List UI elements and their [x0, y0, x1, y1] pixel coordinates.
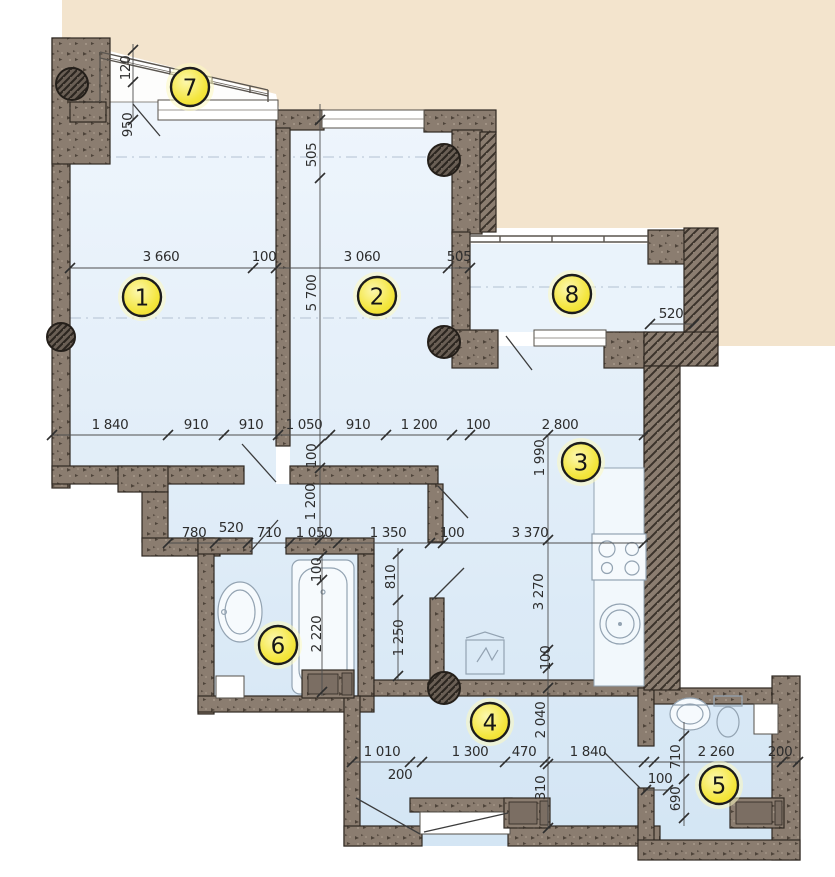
dimension-label: 200 [388, 767, 413, 783]
dimension-label: 3 660 [143, 249, 180, 265]
column-icon [47, 323, 75, 351]
dimension-label: 710 [257, 525, 282, 541]
dimension-label: 910 [346, 417, 371, 433]
dimension-label: 1 200 [303, 484, 319, 521]
dimension-label: 100 [309, 558, 325, 583]
dimension-label: 2 220 [309, 616, 325, 653]
column-icon [428, 672, 460, 704]
room-badge-5: 5 [695, 761, 743, 809]
dimension-label: 710 [668, 745, 684, 770]
bathroom-cabinet-side [342, 673, 352, 695]
column-icon [428, 144, 460, 176]
dimension-label: 470 [512, 744, 537, 760]
dimension-label: 950 [120, 113, 136, 138]
room-number-8: 8 [565, 282, 580, 308]
door-gap-floor [438, 466, 468, 484]
column-icon [56, 68, 88, 100]
dimension-label: 3 370 [512, 525, 549, 541]
room-1-floor [70, 120, 276, 466]
room-badge-1: 1 [118, 273, 166, 321]
room-number-1: 1 [135, 285, 150, 311]
dimension-label: 100 [440, 525, 465, 541]
floor-plan-canvas: 3 6601003 0605055201 8409109101 0509101 … [0, 0, 835, 877]
room-badge-6: 6 [254, 621, 302, 669]
kitchen-sink-icon [600, 604, 640, 644]
bathroom-sink-icon [218, 582, 262, 642]
room-number-6: 6 [271, 633, 286, 659]
room-badge-7: 7 [166, 63, 214, 111]
dimension-label: 1 200 [401, 417, 438, 433]
dimension-label: 3 270 [531, 574, 547, 611]
room-number-7: 7 [183, 75, 198, 101]
room-badge-8: 8 [548, 270, 596, 318]
dimension-label: 2 260 [698, 744, 735, 760]
dimension-label: 3 060 [344, 249, 381, 265]
wc-sink-icon [670, 698, 710, 730]
dimension-label: 520 [659, 306, 684, 322]
dimension-label: 690 [668, 787, 684, 812]
bathroom-step [216, 676, 244, 698]
room-number-3: 3 [574, 450, 589, 476]
room-badge-4: 4 [466, 698, 514, 746]
dimension-label: 1 050 [296, 525, 333, 541]
washer-icon [730, 798, 784, 828]
dimension-label: 505 [447, 249, 472, 265]
dimension-label: 1 300 [452, 744, 489, 760]
shaft-room5 [754, 704, 778, 734]
room-badge-3: 3 [557, 438, 605, 486]
dimension-label: 1 010 [364, 744, 401, 760]
dimension-label: 2 800 [542, 417, 579, 433]
dimension-label: 520 [219, 520, 244, 536]
dimension-label: 1 250 [391, 620, 407, 657]
dimension-label: 1 840 [92, 417, 129, 433]
dimension-label: 100 [466, 417, 491, 433]
room-number-2: 2 [370, 284, 385, 310]
dimension-label: 100 [252, 249, 277, 265]
column-icon [428, 326, 460, 358]
dimension-label: 1 050 [286, 417, 323, 433]
room-number-4: 4 [483, 710, 498, 736]
room-badge-2: 2 [353, 272, 401, 320]
dimension-label: 910 [239, 417, 264, 433]
room-number-5: 5 [712, 773, 727, 799]
dimension-label: 780 [182, 525, 207, 541]
dimension-label: 200 [768, 744, 793, 760]
dimension-label: 2 040 [533, 702, 549, 739]
dimension-label: 100 [304, 444, 320, 469]
dimension-label: 1 990 [532, 440, 548, 477]
dimension-label: 100 [538, 646, 554, 671]
dimension-label: 910 [184, 417, 209, 433]
dimension-label: 810 [383, 565, 399, 590]
floor-plan: 3 6601003 0605055201 8409109101 0509101 … [0, 0, 835, 877]
door-gap-floor [244, 466, 276, 484]
dimension-label: 310 [533, 776, 549, 801]
kitchen-stove-icon [592, 534, 646, 580]
dimension-label: 505 [304, 143, 320, 168]
dimension-label: 5 700 [304, 275, 320, 312]
dimension-label: 1 350 [370, 525, 407, 541]
dimension-label: 1 840 [570, 744, 607, 760]
dimension-label: 100 [648, 771, 673, 787]
wardrobe-icon [504, 798, 550, 828]
dimension-label: 120 [118, 56, 134, 81]
